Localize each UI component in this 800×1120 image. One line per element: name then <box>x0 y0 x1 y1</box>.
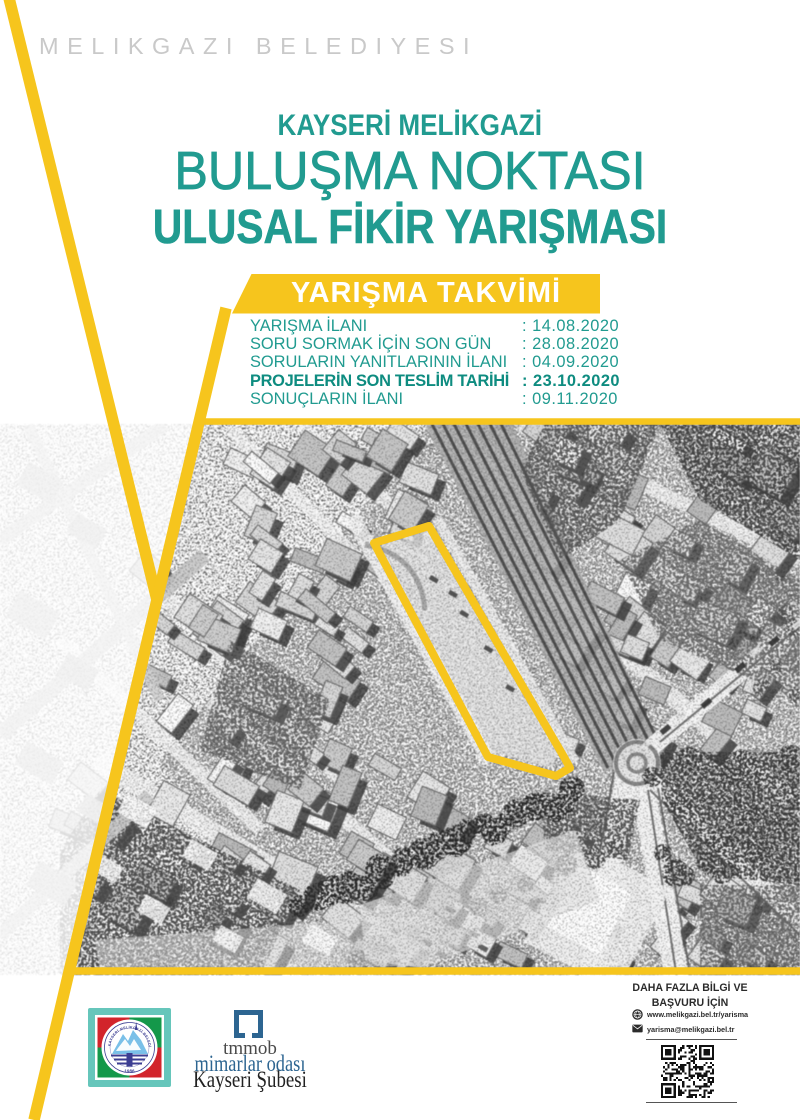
svg-text:1986: 1986 <box>124 1069 135 1074</box>
